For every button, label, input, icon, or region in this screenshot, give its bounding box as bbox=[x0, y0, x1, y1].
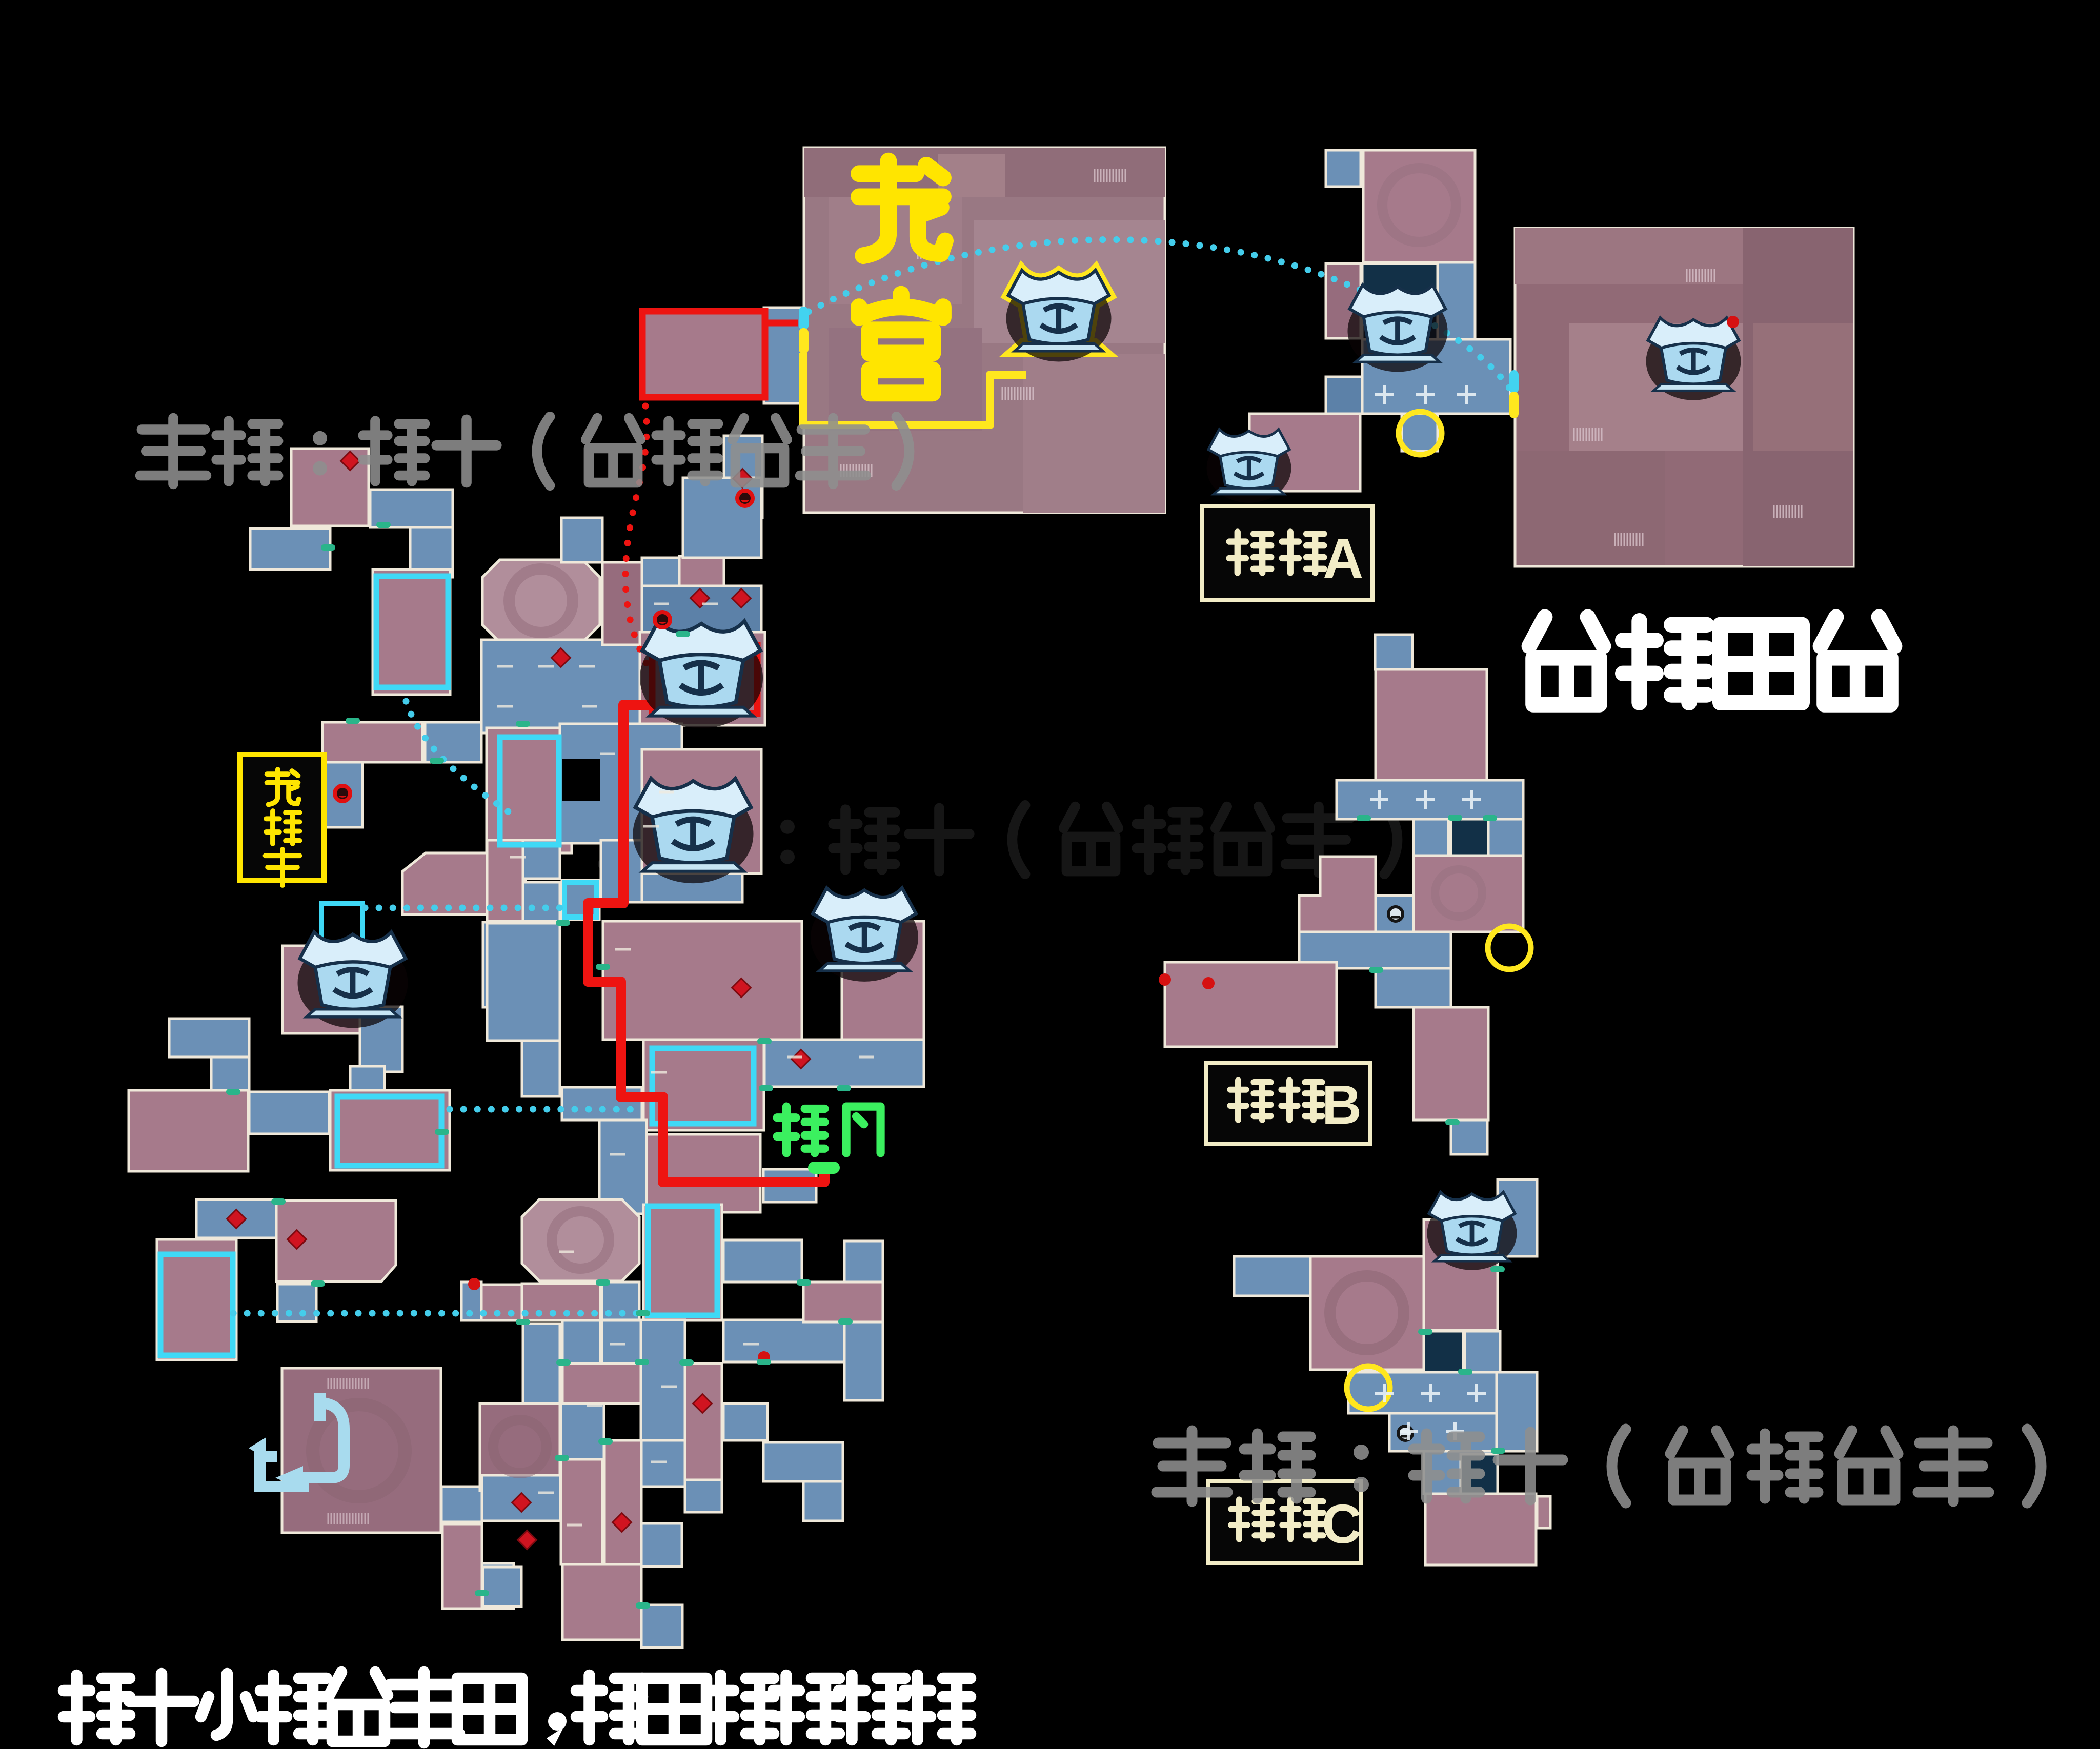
svg-text:C: C bbox=[1322, 1493, 1362, 1555]
svg-text:B: B bbox=[1322, 1073, 1362, 1135]
svg-text:A: A bbox=[1323, 527, 1363, 591]
